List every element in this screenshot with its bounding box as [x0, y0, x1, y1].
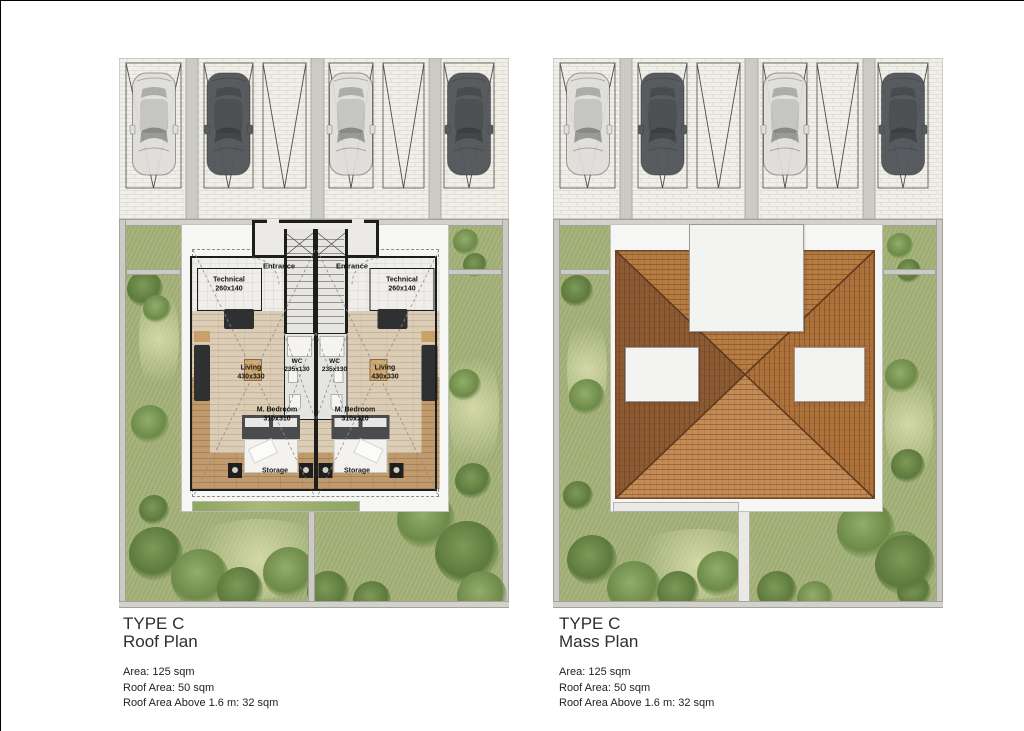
technical-room-label: Technical260x140	[386, 276, 418, 294]
roof-plan-title: TYPE C Roof Plan	[123, 615, 198, 651]
plan-sheet: Technical260x140 Technical260x140 Entran…	[0, 0, 1024, 731]
parking-area	[553, 58, 943, 219]
garden-divider-wall	[883, 269, 936, 275]
tree	[891, 449, 925, 483]
roof-plan-stats: Area: 125 sqm Roof Area: 50 sqm Roof Are…	[123, 665, 278, 712]
walkway	[613, 502, 739, 512]
car-light	[761, 73, 809, 175]
plan-name: Roof Plan	[123, 633, 198, 651]
entrance-volume	[689, 224, 804, 332]
tree	[697, 551, 743, 597]
car-dark	[879, 73, 927, 175]
parking-divider-wall	[620, 58, 632, 219]
walkway	[738, 511, 750, 608]
roof-area-above-stat: Roof Area Above 1.6 m: 32 sqm	[123, 696, 278, 712]
living-label: Living430x330	[371, 364, 398, 382]
wc-label: WC235x130	[322, 358, 347, 374]
tree	[569, 379, 605, 415]
roof-area-stat: Roof Area: 50 sqm	[559, 681, 714, 697]
parking-divider-wall	[311, 58, 324, 219]
garden-divider-wall	[126, 269, 181, 275]
entrance-label: Entrance	[263, 261, 295, 270]
tree	[131, 405, 169, 443]
garden-divider-wall	[447, 269, 502, 275]
technical-room-label: Technical260x140	[213, 276, 245, 294]
car-dark	[445, 73, 493, 175]
car-light	[564, 73, 612, 175]
tree	[449, 369, 481, 401]
area-stat: Area: 125 sqm	[123, 665, 278, 681]
entrance-label: Entrance	[336, 261, 368, 270]
tree	[563, 481, 593, 511]
type-label: TYPE C	[559, 615, 638, 633]
storage-label: Storage	[262, 468, 288, 477]
car-light	[327, 73, 375, 175]
roof-area-stat: Roof Area: 50 sqm	[123, 681, 278, 697]
mass-plan-panel	[553, 58, 943, 608]
tree	[453, 229, 479, 255]
car-light	[130, 73, 178, 175]
mass-plan-title: TYPE C Mass Plan	[559, 615, 638, 651]
plan-name: Mass Plan	[559, 633, 638, 651]
side-volume-left	[625, 347, 699, 402]
tree	[885, 359, 919, 393]
car-dark	[639, 73, 687, 175]
tree	[887, 233, 913, 259]
roof-line-overlay	[182, 225, 450, 513]
bedroom-label: M. Bedroom310x310	[257, 406, 297, 424]
boundary-wall-right	[936, 219, 943, 608]
storage-label: Storage	[344, 468, 370, 477]
door-opening	[267, 219, 279, 224]
living-label: Living430x330	[237, 364, 264, 382]
roof-area-above-stat: Roof Area Above 1.6 m: 32 sqm	[559, 696, 714, 712]
tree	[143, 295, 171, 323]
parking-divider-wall	[863, 58, 875, 219]
parking-area	[119, 58, 509, 219]
boundary-wall-left	[119, 219, 126, 608]
bedroom-label: M. Bedroom310x310	[335, 406, 375, 424]
mass-plan-stats: Area: 125 sqm Roof Area: 50 sqm Roof Are…	[559, 665, 714, 712]
tree	[875, 535, 935, 595]
area-stat: Area: 125 sqm	[559, 665, 714, 681]
car-dark	[205, 73, 253, 175]
tree	[455, 463, 491, 499]
parking-divider-wall	[745, 58, 758, 219]
side-volume-right	[794, 347, 865, 402]
tree	[561, 275, 593, 307]
garden-divider-wall	[560, 269, 610, 275]
boundary-wall-bottom	[119, 601, 509, 608]
parking-divider-wall	[429, 58, 441, 219]
mass-plan-building	[610, 224, 883, 512]
type-label: TYPE C	[123, 615, 198, 633]
tree	[139, 495, 169, 525]
roof-plan-building: Technical260x140 Technical260x140 Entran…	[181, 224, 449, 512]
boundary-wall-right	[502, 219, 509, 608]
boundary-wall-left	[553, 219, 560, 608]
boundary-wall-bottom	[553, 601, 943, 608]
garden-center-wall	[308, 511, 315, 608]
roof-plan-panel: Technical260x140 Technical260x140 Entran…	[119, 58, 509, 608]
door-opening	[352, 219, 364, 224]
parking-divider-wall	[186, 58, 198, 219]
wc-label: WC235x130	[284, 358, 309, 374]
